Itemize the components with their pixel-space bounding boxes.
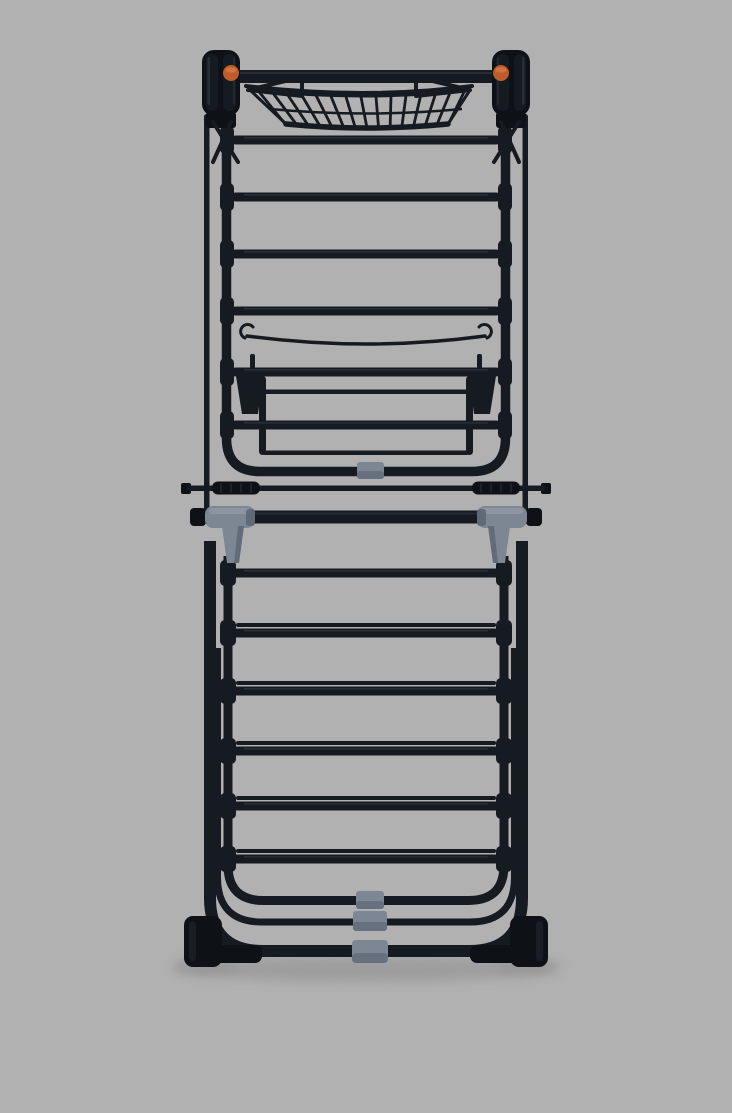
rung (232, 747, 500, 756)
top-bar (210, 70, 522, 83)
t-joint-right (477, 506, 542, 563)
rung-highlight (244, 137, 488, 139)
grip-ridge (510, 484, 512, 493)
grip-left (212, 482, 260, 495)
wing-side-right (466, 376, 473, 455)
rung-highlight (244, 570, 488, 572)
rung (232, 802, 500, 811)
wire (247, 336, 485, 344)
rung (232, 855, 500, 864)
rung-thin (236, 741, 496, 745)
rung-thin (236, 796, 496, 800)
leg-frame (210, 541, 522, 951)
grip-right (472, 482, 520, 495)
rung-highlight (244, 194, 488, 196)
grip-ridge (230, 484, 232, 493)
grip-ridge (220, 484, 222, 493)
folded-wing (220, 354, 512, 479)
tension-bar (181, 482, 551, 495)
rung (232, 569, 500, 578)
drying-rack-photo: Black foldable clothes airer drying rack… (0, 0, 732, 1113)
wing-center-clip-shade (357, 471, 384, 479)
outer-rail-left (204, 114, 210, 520)
top-rungs (220, 126, 512, 325)
rung-highlight (244, 856, 488, 858)
rung-highlight (244, 308, 488, 310)
lower-frame (210, 541, 522, 951)
clip-orange-right-highlight (496, 67, 507, 72)
top-bar-rod (210, 70, 522, 83)
wing-pin (477, 354, 482, 369)
lower-rungs (220, 560, 512, 872)
rung-thin (236, 849, 496, 853)
top-bar-highlight (226, 72, 506, 74)
wing-rung (231, 421, 501, 430)
rung (231, 193, 501, 202)
wing-bracket-left (236, 376, 263, 414)
rung-highlight (244, 748, 488, 750)
wing-side-left (259, 376, 266, 455)
rung (232, 629, 500, 638)
grip-ridge (490, 484, 492, 493)
t-joint-left (190, 506, 255, 563)
rung (231, 250, 501, 259)
product-photo-stage: Black foldable clothes airer drying rack… (0, 0, 732, 1113)
wing-rung-thin (263, 451, 469, 456)
bottom-clip-shade (356, 901, 384, 909)
wing-rung-thin (263, 390, 469, 395)
nested-u-frame-inner (228, 556, 504, 901)
rung-highlight (244, 803, 488, 805)
hanging-basket (246, 77, 472, 129)
bottom-clips (352, 891, 388, 963)
outer-rail-right (523, 114, 529, 520)
grip-ridge (480, 484, 482, 493)
rung (231, 136, 501, 145)
crossbar-highlight (212, 513, 520, 515)
grip-ridge (250, 484, 252, 493)
rung (232, 687, 500, 696)
rung-highlight (244, 251, 488, 253)
rung-highlight (244, 630, 488, 632)
hanger-wire (241, 325, 492, 344)
rung (231, 307, 501, 316)
wing-top-bar (231, 368, 501, 377)
grip-ridge (500, 484, 502, 493)
wing-bracket-right (469, 376, 496, 414)
wing-pin (250, 354, 255, 369)
rung-thin (236, 681, 496, 685)
bottom-clip-shade (352, 953, 388, 963)
rung-highlight (244, 422, 488, 424)
rung-highlight (244, 688, 488, 690)
clip-orange-left-highlight (226, 67, 237, 72)
grip-ridge (240, 484, 242, 493)
rung-thin (236, 623, 496, 627)
rung-highlight (244, 369, 488, 371)
bottom-clip-shade (353, 922, 387, 931)
